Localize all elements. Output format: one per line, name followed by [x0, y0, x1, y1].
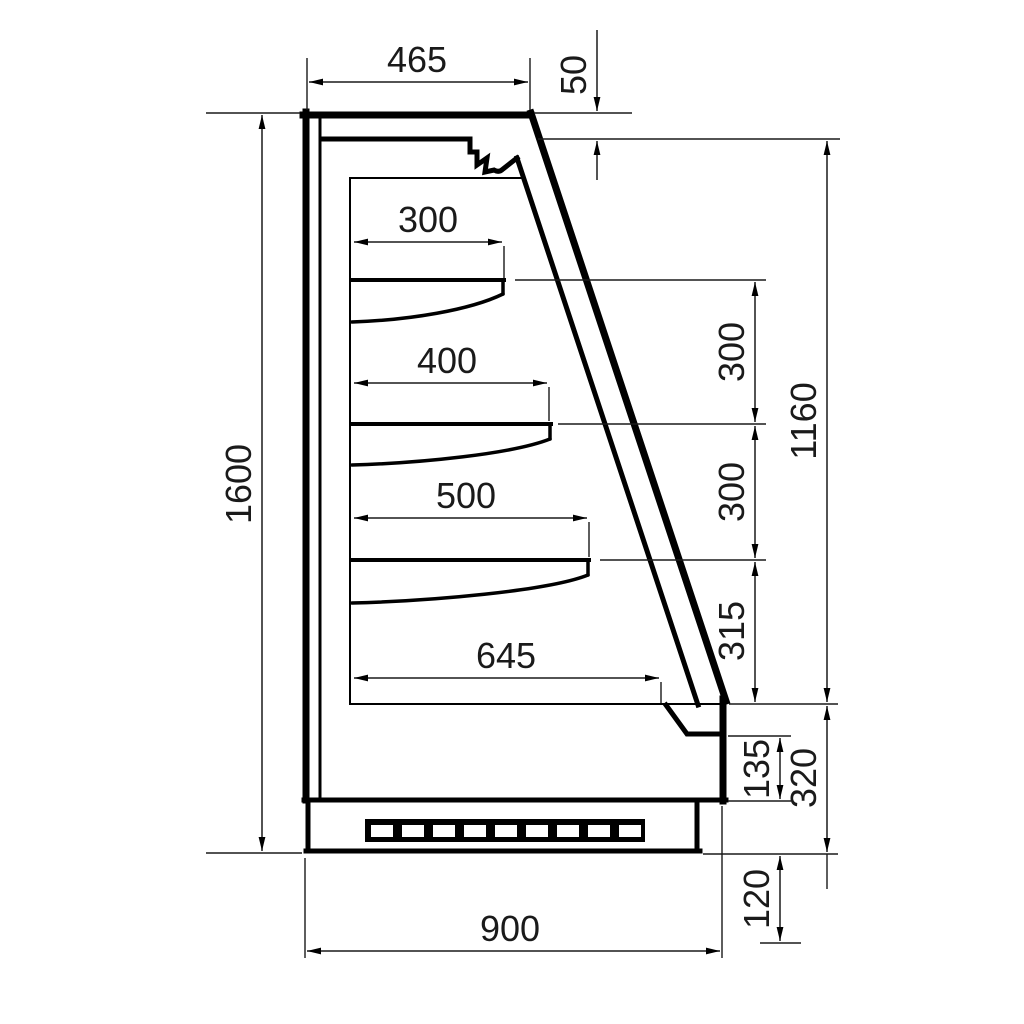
vent-grille-slot [588, 825, 610, 837]
vent-grille-slot [371, 825, 393, 837]
dim-label-opening-height: 1160 [783, 382, 824, 459]
vent-grille-slot [495, 825, 517, 837]
vent-grille-slot [433, 825, 455, 837]
dim-label-overall-height: 1600 [218, 444, 259, 524]
dim-label-sill-height: 135 [736, 739, 777, 799]
dim-label-shelf-2-depth: 400 [417, 340, 477, 381]
dim-label-shelf-3-depth: 500 [436, 475, 496, 516]
dim-label-top-depth: 465 [387, 39, 447, 80]
vent-grille-slot [402, 825, 424, 837]
drawing-background [0, 0, 1024, 1024]
dim-label-base-shelf-depth: 645 [476, 635, 536, 676]
dim-label-shelf-1-depth: 300 [398, 199, 458, 240]
dim-label-shelf-gap-1: 300 [711, 322, 752, 382]
vent-grille-slot [619, 825, 641, 837]
vent-grille-slot [464, 825, 486, 837]
dim-label-shelf-gap-2: 300 [711, 462, 752, 522]
vent-grille-slot [526, 825, 548, 837]
dim-label-base-height: 320 [783, 748, 824, 808]
dim-label-canopy-offset: 50 [553, 55, 594, 95]
dim-label-overall-depth: 900 [480, 908, 540, 949]
dim-label-shelf-gap-3: 315 [711, 601, 752, 661]
vent-grille [365, 819, 645, 842]
dim-label-plinth-height: 120 [736, 869, 777, 929]
vent-grille-slot [557, 825, 579, 837]
technical-drawing: 465 50 300 400 500 645 1600 300 300 315 … [0, 0, 1024, 1024]
